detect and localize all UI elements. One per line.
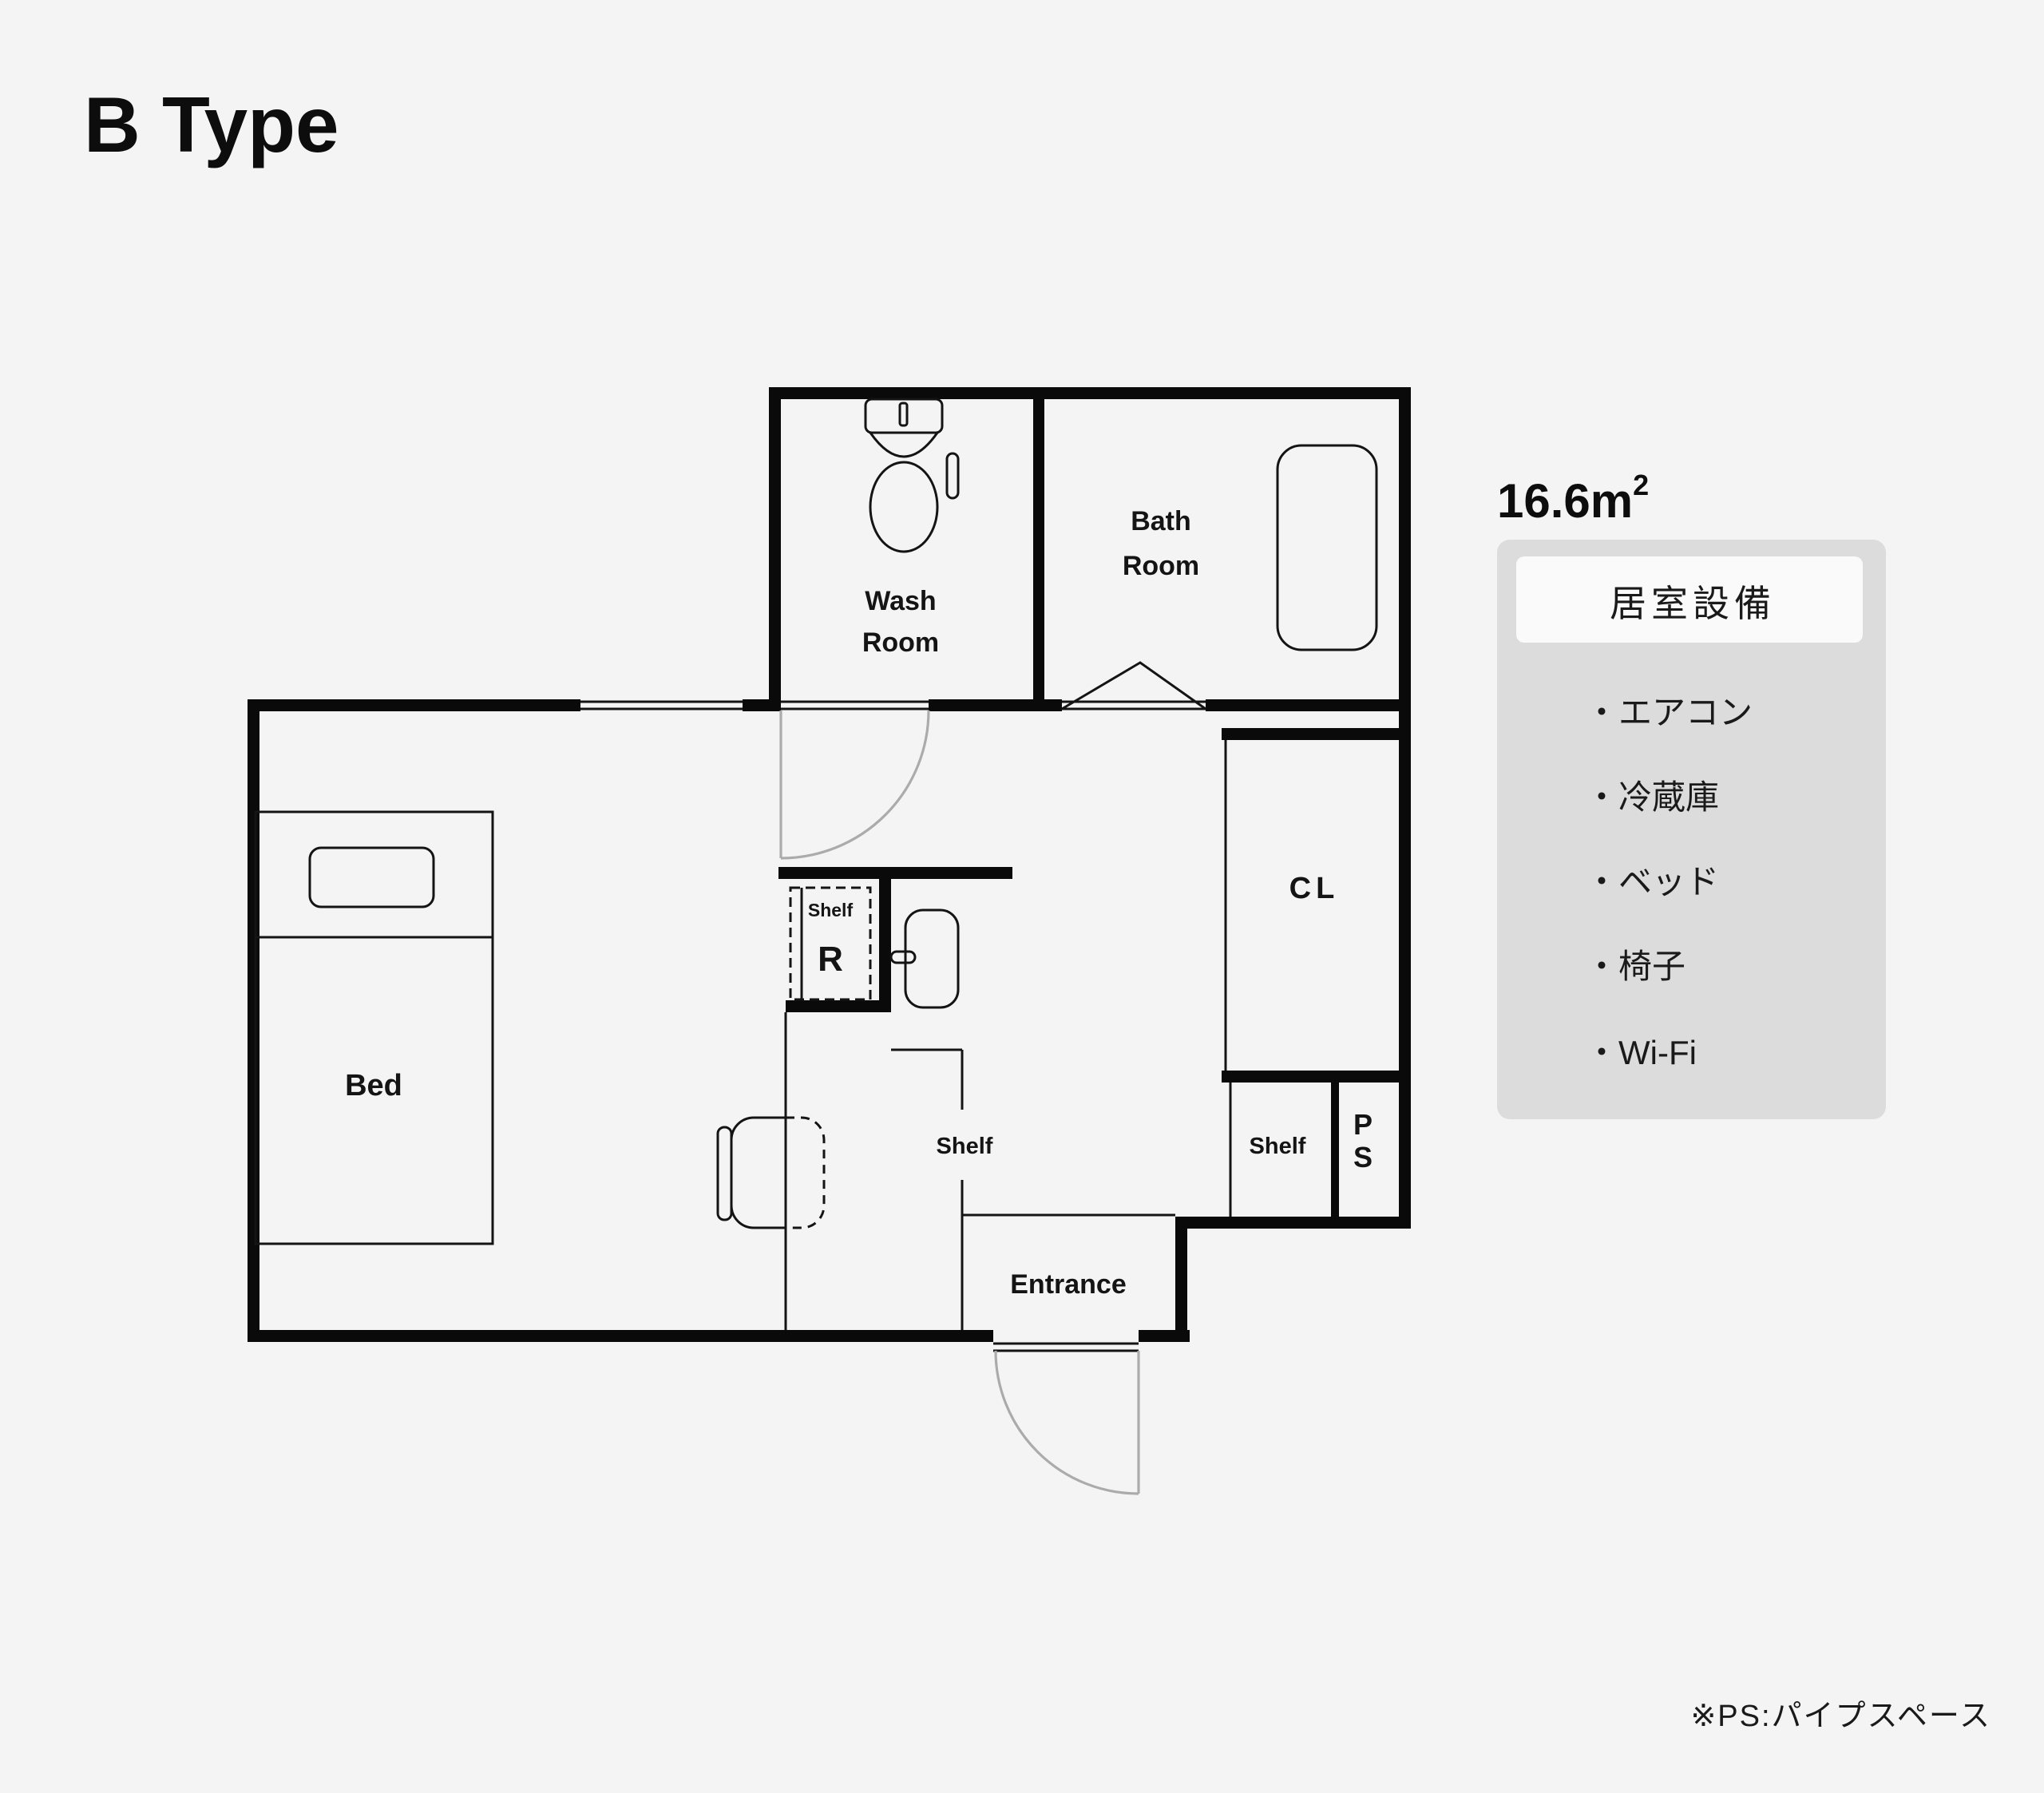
wall-entrance-right bbox=[1175, 1217, 1187, 1342]
area-value: 16.6m bbox=[1497, 474, 1633, 528]
area-label: 16.6m2 bbox=[1497, 469, 1649, 528]
washroom-door-arc bbox=[781, 710, 929, 858]
equipment-item-wifi: ・Wi-Fi bbox=[1585, 1034, 1697, 1071]
equipment-item-bed: ・ベッド bbox=[1585, 863, 1719, 900]
wall-left-outer bbox=[248, 699, 259, 1342]
faucet-icon bbox=[891, 952, 915, 963]
wall-kitchen-vertical bbox=[879, 879, 891, 1011]
entrance-label: Entrance bbox=[1010, 1269, 1127, 1300]
toilet-lid-icon bbox=[870, 433, 937, 457]
closet-label: CL bbox=[1289, 872, 1340, 905]
wall-fridge-niche-bottom bbox=[786, 1000, 891, 1012]
fridge-shelf-label: Shelf bbox=[808, 900, 854, 920]
wall-wash-bath-divider bbox=[1033, 398, 1044, 699]
bed-outline bbox=[255, 812, 493, 1244]
area-superscript: 2 bbox=[1633, 469, 1649, 501]
wall-bath-bottom-right bbox=[1206, 699, 1411, 711]
floor-plan-canvas: B Type bbox=[0, 0, 2044, 1793]
washroom-label-line1: Wash bbox=[865, 586, 936, 616]
washbasin-icon bbox=[905, 910, 958, 1007]
bathroom-label-line2: Room bbox=[1123, 551, 1199, 581]
wall-right-outer bbox=[1399, 387, 1411, 1229]
wall-washroom-left bbox=[769, 387, 781, 710]
wall-shelf-ps-bottom bbox=[1175, 1217, 1411, 1229]
door-swings bbox=[781, 710, 1139, 1494]
equipment-item-aircon: ・エアコン bbox=[1585, 694, 1753, 731]
equipment-panel: 居室設備 ・エアコン ・冷蔵庫 ・ベッド ・椅子 ・Wi-Fi bbox=[1497, 540, 1886, 1119]
entrance-door-arc bbox=[996, 1351, 1139, 1494]
wall-kitchen-top bbox=[778, 867, 1012, 879]
bathtub-icon bbox=[1277, 445, 1377, 650]
pipe-space-label-s: S bbox=[1353, 1141, 1373, 1174]
toilet-handle-icon bbox=[900, 403, 907, 425]
closet-shelf-label: Shelf bbox=[1250, 1134, 1306, 1159]
wall-bottom-left bbox=[248, 1330, 993, 1342]
partitions-and-openings bbox=[580, 663, 1230, 1351]
hall-shelf-label: Shelf bbox=[937, 1134, 993, 1159]
equipment-item-chair: ・椅子 bbox=[1585, 948, 1686, 985]
toilet-bowl-icon bbox=[870, 462, 937, 552]
wall-cl-bottom bbox=[1222, 1071, 1411, 1083]
floor-plan-page: B Type bbox=[0, 0, 2044, 1793]
chair-backrest-icon bbox=[718, 1127, 731, 1220]
wall-washroom-bottom bbox=[929, 699, 1044, 711]
page-title: B Type bbox=[84, 81, 339, 168]
room-labels: Wash Room Bath Room CL Bed Shelf R Shelf… bbox=[345, 506, 1373, 1300]
equipment-item-fridge: ・冷蔵庫 bbox=[1585, 778, 1719, 816]
wall-bath-bottom-left bbox=[1044, 699, 1062, 711]
bed-label: Bed bbox=[345, 1069, 402, 1102]
wall-cl-top bbox=[1222, 728, 1411, 740]
wall-shelf-ps-divider bbox=[1331, 1083, 1339, 1217]
wall-main-top-left bbox=[248, 699, 580, 711]
chair-seat-dashed bbox=[786, 1118, 824, 1228]
footer-note: ※PS:パイプスペース bbox=[1690, 1700, 1991, 1733]
walls bbox=[248, 387, 1411, 1342]
chair-seat-solid bbox=[731, 1118, 786, 1228]
bathroom-label-line1: Bath bbox=[1131, 506, 1191, 536]
pipe-space-label-p: P bbox=[1353, 1108, 1373, 1141]
wall-top-washbath bbox=[769, 387, 1411, 399]
toilet-button-icon bbox=[947, 453, 958, 498]
wall-main-top-pier bbox=[743, 699, 781, 711]
furniture bbox=[255, 399, 1377, 1244]
pillow-icon bbox=[310, 848, 434, 907]
washroom-label-line2: Room bbox=[862, 627, 939, 658]
refrigerator-letter: R bbox=[818, 940, 843, 979]
equipment-header-label: 居室設備 bbox=[1610, 583, 1776, 624]
